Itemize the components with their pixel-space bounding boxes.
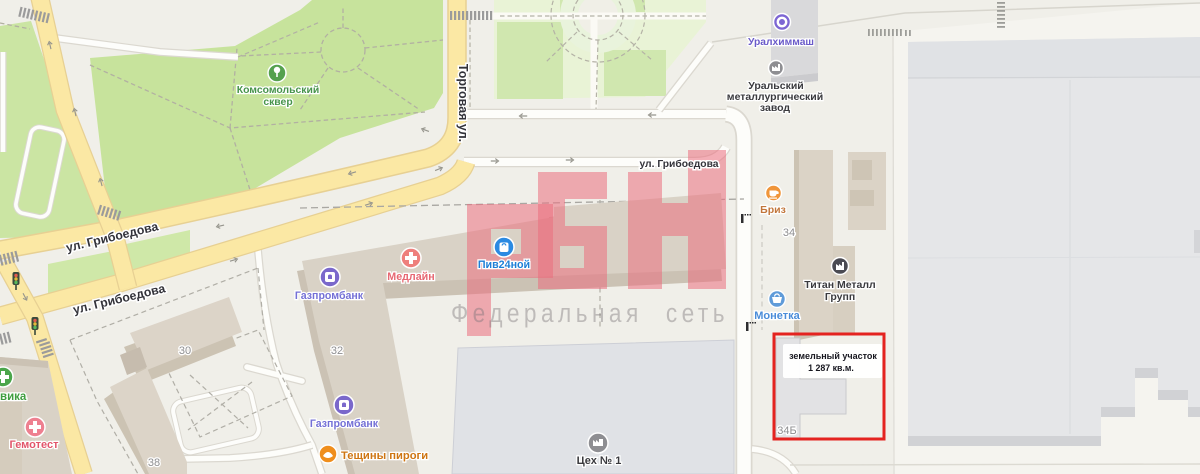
svg-text:38: 38 [148,457,160,469]
svg-text:вика: вика [0,391,27,403]
svg-text:Медлайн: Медлайн [387,271,434,283]
svg-text:земельный участок: земельный участок [789,351,877,361]
svg-text:завод: завод [760,102,791,114]
svg-text:Комсомольский: Комсомольский [237,85,319,96]
svg-text:Федеральная сеть: Федеральная сеть [451,300,729,328]
svg-text:Торговая ул.: Торговая ул. [456,64,470,142]
svg-text:ул. Грибоедова: ул. Грибоедова [639,158,718,170]
svg-text:Монетка: Монетка [754,310,800,322]
svg-text:Газпромбанк: Газпромбанк [295,290,364,302]
svg-text:сквер: сквер [263,97,292,108]
svg-text:30: 30 [179,345,191,357]
svg-text:32: 32 [331,345,343,357]
svg-text:Газпромбанк: Газпромбанк [310,418,379,430]
svg-text:Гемотест: Гемотест [10,439,60,451]
svg-text:34Б: 34Б [777,425,796,437]
svg-text:Титан Металл: Титан Металл [804,279,875,291]
svg-text:Цех № 1: Цех № 1 [577,455,622,467]
svg-text:Пив24ной: Пив24ной [478,259,530,271]
svg-text:Тещины пироги: Тещины пироги [341,450,428,462]
svg-text:Бриз: Бриз [760,204,786,216]
svg-text:34: 34 [783,227,795,239]
svg-text:1 287 кв.м.: 1 287 кв.м. [808,363,854,373]
svg-text:Групп: Групп [825,291,855,303]
svg-text:Уралхиммаш: Уралхиммаш [748,37,814,48]
